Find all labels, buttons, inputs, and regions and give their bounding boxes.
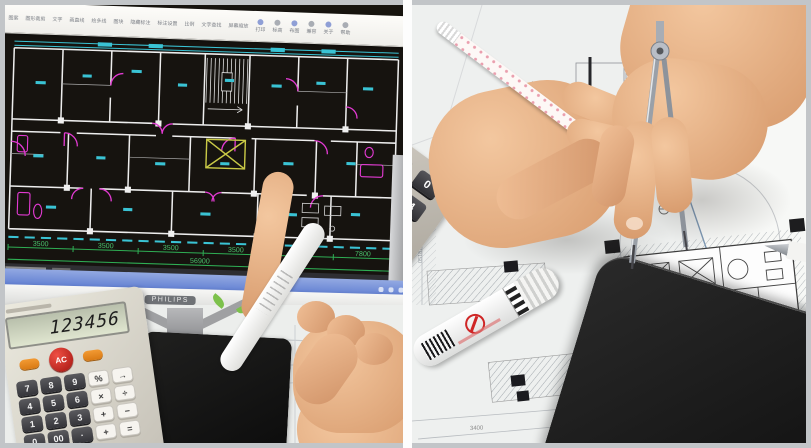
toolbar-icon-item[interactable]: 兼容 (306, 21, 316, 35)
calc-key[interactable]: 6 (66, 390, 89, 408)
calc-key[interactable]: − (116, 401, 139, 419)
calculator-ac-button[interactable]: AC (48, 346, 75, 373)
tray-icon (388, 287, 393, 292)
calculator-display-value: 123456 (49, 307, 120, 338)
toolbar-icon-item[interactable]: 打印 (255, 19, 265, 33)
tray-icon (378, 286, 383, 291)
marker-barcode (420, 329, 455, 360)
toolbar-icon-item[interactable]: 标高 (272, 20, 282, 34)
about-icon (326, 21, 332, 27)
toolbar-item[interactable]: 绘多线 (91, 17, 106, 25)
toolbar-item[interactable]: 标注设置 (157, 19, 177, 27)
calc-key[interactable]: 00 (47, 429, 70, 443)
pen-cone (763, 240, 789, 256)
monitor-brand-logo: PHILIPS (145, 295, 197, 305)
calc-key[interactable]: 3 (68, 408, 91, 426)
cad-screen: 3500 3500 3500 3500 3500 7800 56900 (5, 31, 403, 284)
calc-key[interactable]: × (90, 387, 113, 405)
toolbar-icon-item[interactable]: 布图 (289, 20, 299, 34)
toolbar-item[interactable]: 隐藏标注 (130, 18, 150, 26)
level-icon (275, 20, 281, 26)
dim-3400: 3400 (470, 426, 484, 432)
calc-key[interactable]: 0 (23, 433, 46, 443)
left-photo-cad-workstation: 3500 3500 3500 3500 3500 7800 56900 图案 (5, 5, 403, 443)
photo-collage: 3500 3500 3500 3500 3500 7800 56900 图案 (0, 0, 811, 448)
calc-key[interactable]: % (87, 369, 110, 387)
toolbar-item[interactable]: 图形裁剪 (25, 14, 45, 22)
calc-key[interactable]: 5 (42, 394, 65, 412)
calc-key[interactable]: 4 (18, 397, 41, 415)
calc-key[interactable]: = (118, 419, 141, 437)
cad-floorplan-drawing: 3500 3500 3500 3500 3500 7800 56900 (5, 31, 403, 284)
dim-3500-3: 3500 (163, 244, 179, 252)
compat-icon (309, 21, 315, 27)
layout-icon (292, 20, 298, 26)
toolbar-item[interactable]: 屏幕缩放 (228, 22, 248, 30)
calculator: 123456 AC 7 8 9 % → 4 5 6 × ÷ 1 2 3 (5, 286, 165, 443)
dim-3500-2: 3500 (98, 242, 114, 250)
calc-key[interactable]: 9 (63, 373, 86, 391)
hand-knuckle (355, 333, 393, 365)
toolbar-icon-item[interactable]: 帮助 (340, 22, 350, 36)
right-photo-blueprint-work: 2000 3400 9000 30700 05187310 0 0 (412, 5, 806, 443)
dim-7800: 7800 (355, 250, 371, 258)
calc-key[interactable]: 8 (40, 376, 63, 394)
dim-3500-1: 3500 (33, 240, 49, 248)
toolbar-item[interactable]: 图块 (113, 18, 123, 25)
toolbar-item[interactable]: 比例 (184, 20, 194, 27)
fingernail (626, 217, 643, 230)
calc-key[interactable]: + (92, 405, 115, 423)
calc-key[interactable]: → (111, 366, 134, 384)
dim-total-56900: 56900 (190, 257, 210, 266)
calculator-keypad: 7 8 9 % → 4 5 6 × ÷ 1 2 3 + − 0 00 · + = (16, 364, 156, 443)
calc-key[interactable]: 7 (16, 379, 39, 397)
calc-key[interactable]: ÷ (113, 384, 136, 402)
toolbar-icon-item[interactable]: 关于 (323, 21, 333, 35)
print-icon (258, 19, 264, 25)
calc-key[interactable]: · (71, 426, 94, 443)
calculator-orange-button[interactable] (82, 349, 103, 362)
toolbar-item[interactable]: 文字查找 (201, 21, 221, 29)
calculator-orange-button[interactable] (19, 358, 40, 371)
toolbar-item[interactable]: 图案 (8, 14, 18, 21)
dim-3500-4: 3500 (228, 246, 244, 254)
photo-divider (403, 0, 412, 448)
toolbar-item[interactable]: 文字 (52, 15, 62, 22)
calc-key[interactable]: + (95, 423, 118, 441)
calc-key[interactable]: 0 (412, 147, 414, 178)
toolbar-item[interactable]: 画直线 (69, 16, 84, 24)
calc-key[interactable]: 2 (45, 412, 68, 430)
help-icon (343, 22, 349, 28)
calc-key[interactable]: 1 (21, 415, 44, 433)
